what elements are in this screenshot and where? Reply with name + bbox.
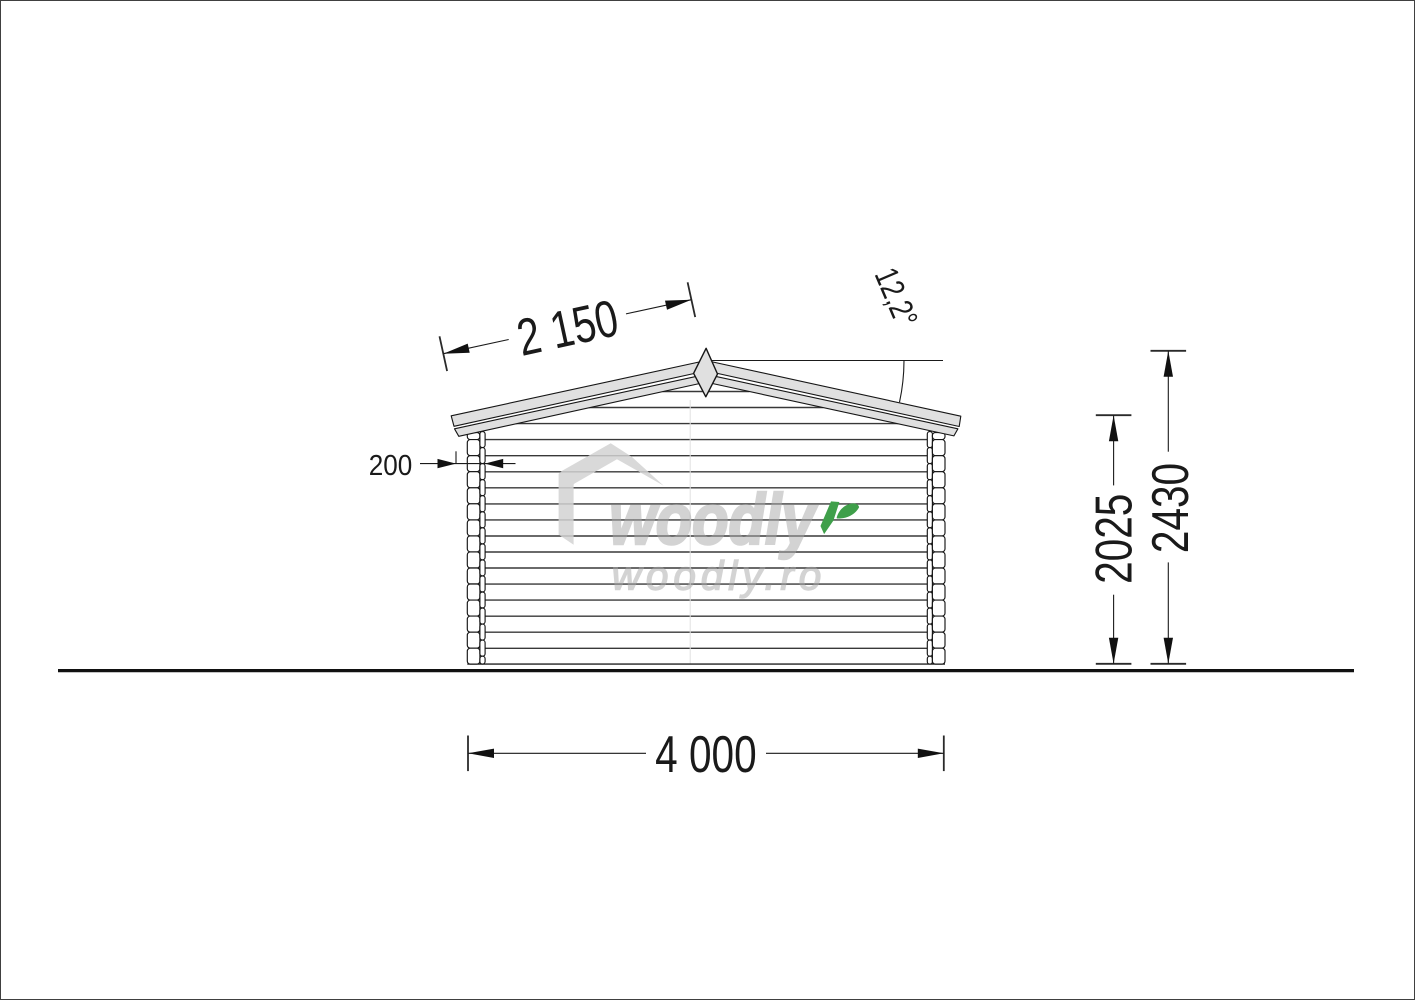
svg-text:2025: 2025: [1085, 494, 1143, 584]
svg-text:woodly.ro: woodly.ro: [612, 553, 826, 599]
svg-text:woodly: woodly: [609, 480, 818, 559]
svg-text:4 000: 4 000: [655, 725, 756, 783]
svg-text:200: 200: [369, 449, 413, 482]
svg-text:2 150: 2 150: [512, 289, 623, 367]
svg-text:2430: 2430: [1141, 463, 1199, 553]
svg-text:12,2°: 12,2°: [867, 263, 924, 333]
